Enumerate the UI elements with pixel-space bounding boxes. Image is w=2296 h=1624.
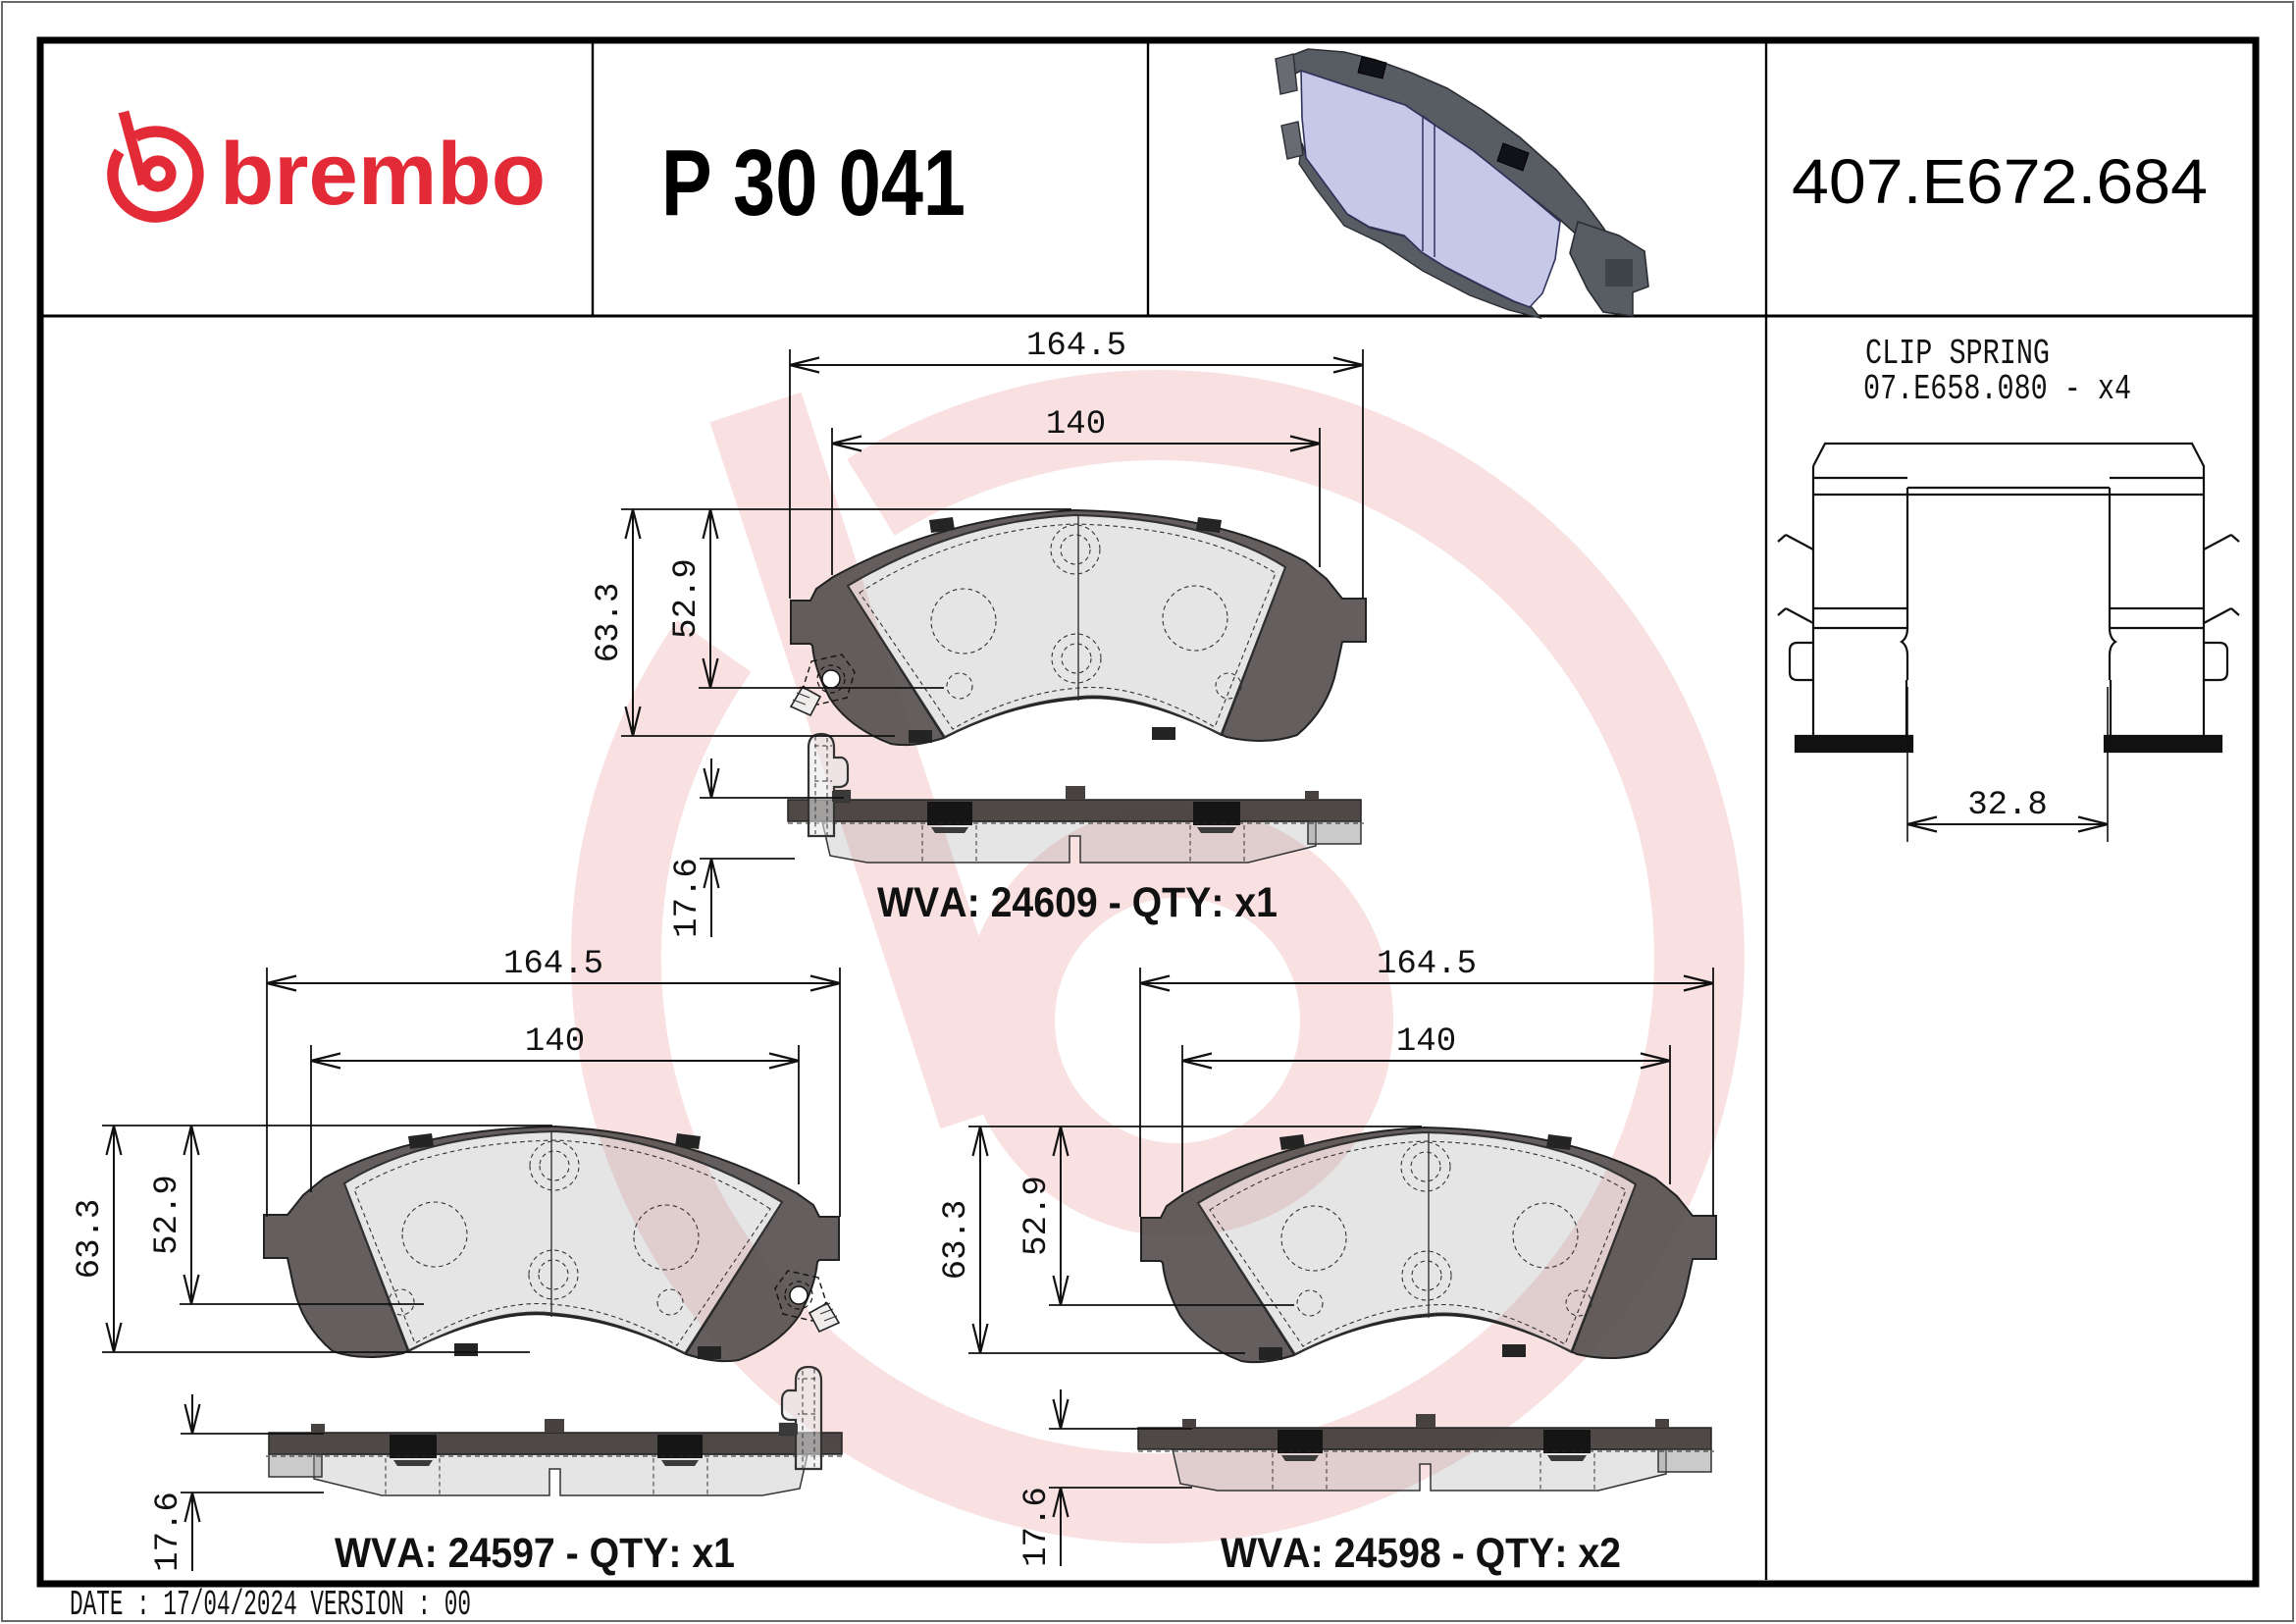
svg-text:164.5: 164.5: [1377, 946, 1477, 983]
svg-text:P 30 041: P 30 041: [661, 131, 965, 236]
svg-text:140: 140: [1396, 1023, 1456, 1061]
svg-text:17.6: 17.6: [150, 1492, 187, 1572]
svg-text:52.9: 52.9: [149, 1175, 186, 1255]
svg-text:32.8: 32.8: [1967, 787, 2048, 824]
svg-text:WVA: 24597 - QTY: x1: WVA: 24597 - QTY: x1: [335, 1530, 735, 1577]
svg-text:140: 140: [1046, 406, 1106, 444]
svg-text:52.9: 52.9: [1018, 1176, 1056, 1256]
svg-text:164.5: 164.5: [1026, 328, 1126, 365]
svg-text:17.6: 17.6: [669, 858, 706, 938]
svg-text:DATE : 17/04/2024 VERSION : 00: DATE : 17/04/2024 VERSION : 00: [70, 1585, 471, 1624]
svg-text:63.3: 63.3: [938, 1200, 975, 1281]
svg-text:brembo: brembo: [220, 126, 546, 224]
svg-text:WVA: 24598 - QTY: x2: WVA: 24598 - QTY: x2: [1221, 1530, 1621, 1577]
svg-text:407.E672.684: 407.E672.684: [1792, 146, 2208, 217]
svg-text:WVA: 24609 - QTY: x1: WVA: 24609 - QTY: x1: [877, 879, 1278, 926]
svg-text:63.3: 63.3: [591, 583, 628, 663]
svg-text:17.6: 17.6: [1018, 1487, 1056, 1567]
svg-text:63.3: 63.3: [72, 1199, 109, 1280]
svg-text:07.E658.080 - x4: 07.E658.080 - x4: [1863, 369, 2131, 409]
svg-text:52.9: 52.9: [668, 558, 705, 639]
svg-text:140: 140: [525, 1023, 585, 1061]
svg-text:CLIP SPRING: CLIP SPRING: [1865, 334, 2050, 374]
svg-text:164.5: 164.5: [503, 946, 603, 983]
